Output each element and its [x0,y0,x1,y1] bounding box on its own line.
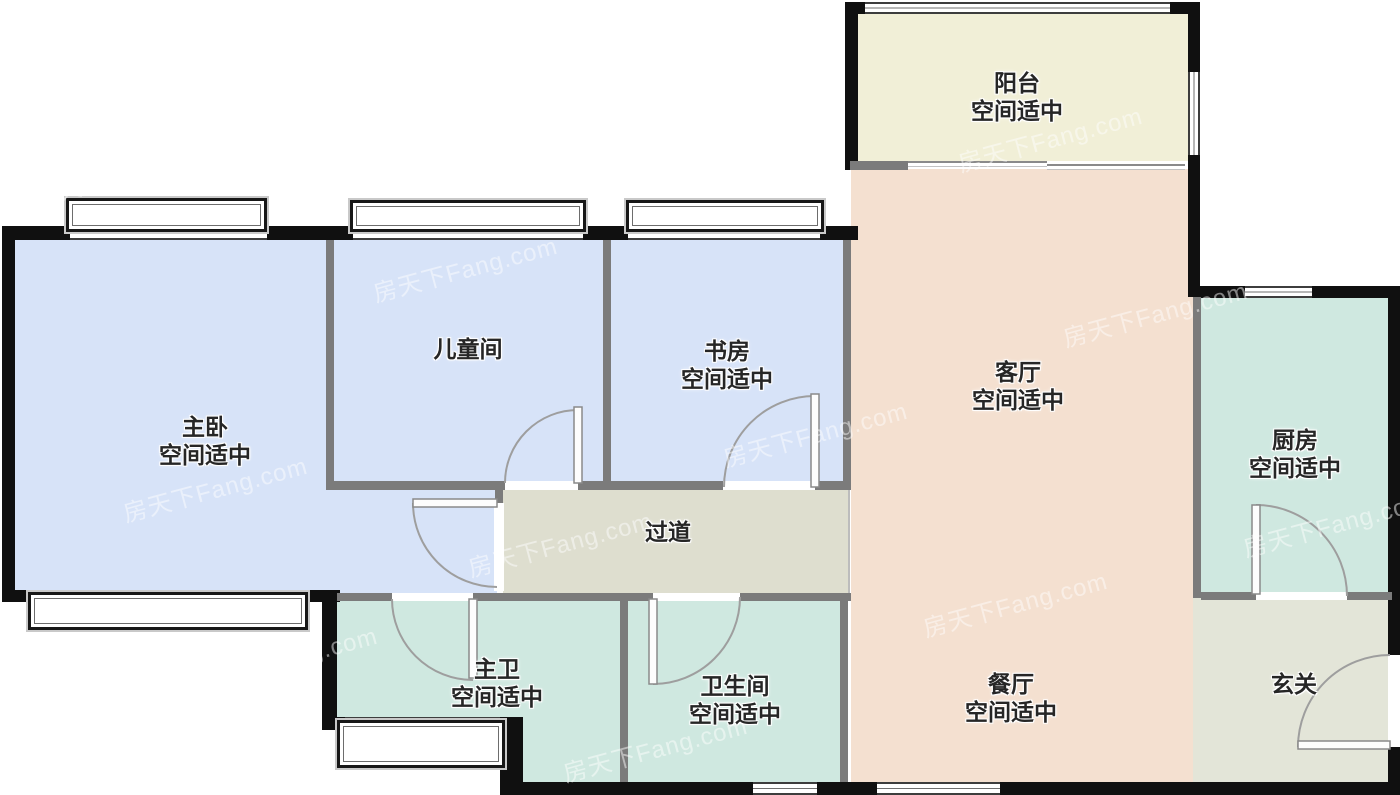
room-status: 空间适中 [689,700,781,728]
room-status: 空间适中 [1249,454,1341,482]
room-name: 儿童间 [434,335,503,363]
wall [505,782,753,795]
balcony-window [865,2,1170,14]
room-status: 空间适中 [971,97,1063,125]
wall [1388,747,1400,795]
wall [1201,592,1256,600]
sliding-door-panel [1047,164,1185,170]
wall [845,2,858,170]
wall [578,481,723,490]
wall [620,601,628,782]
bay-window [350,200,586,232]
wall [337,593,392,601]
room-name: 书房 [681,337,773,365]
wall [850,161,908,170]
room-status: 空间适中 [451,683,543,711]
wall [820,226,858,240]
wall [326,240,334,485]
master-bedroom-extension-area [327,490,497,593]
entry-door-opening [1388,655,1400,747]
bay-window [28,592,308,630]
corridor-label: 过道 [645,518,691,546]
wall [1188,155,1200,297]
bay-window [337,720,505,768]
wall [1000,782,1400,795]
wall [815,481,851,490]
door-opening [723,481,815,490]
window [1188,72,1200,155]
watermark: 房天下Fang.com [629,31,821,114]
master-bath-area-lower [510,700,620,782]
window [877,782,1000,795]
wall [1312,286,1400,298]
foyer-label: 玄关 [1271,670,1317,698]
wall [2,226,15,602]
master-bedroom-label: 主卧 空间适中 [159,413,251,469]
wall [843,240,851,490]
wall [740,593,851,601]
living-room-label: 客厅 空间适中 [972,358,1064,414]
wall [473,593,653,601]
wall [322,596,337,730]
room-name: 客厅 [972,358,1064,386]
wall [817,782,877,795]
room-status: 空间适中 [965,698,1057,726]
door-opening [494,503,504,591]
room-name: 主卫 [451,655,543,683]
sliding-door-panel [908,161,1047,167]
room-name: 餐厅 [965,670,1057,698]
wall [265,226,353,240]
door-opening [505,481,578,490]
wall [1347,592,1392,600]
room-name: 过道 [645,518,691,546]
door-opening [1256,592,1347,600]
door-opening [653,593,740,601]
wall [1193,297,1201,598]
kids-room-label: 儿童间 [434,335,503,363]
wall [495,481,503,505]
master-bath-label: 主卫 空间适中 [451,655,543,711]
balcony-label: 阳台 空间适中 [971,69,1063,125]
study-label: 书房 空间适中 [681,337,773,393]
room-status: 空间适中 [972,386,1064,414]
floor-plan: 阳台 空间适中 主卧 空间适中 儿童间 书房 空间适中 客厅 空间适中 厨房 空… [0,0,1400,795]
room-status: 空间适中 [159,441,251,469]
window [753,782,817,795]
dining-room-label: 餐厅 空间适中 [965,670,1057,726]
wall [326,481,505,490]
wall [583,226,628,240]
door-opening [392,593,473,601]
wall [840,593,848,782]
room-status: 空间适中 [681,365,773,393]
wall [603,240,611,485]
bay-window [626,200,824,232]
room-name: 厨房 [1249,426,1341,454]
room-name: 玄关 [1271,670,1317,698]
room-name: 主卧 [159,413,251,441]
room-boundary-line [848,490,850,593]
kitchen-window [1245,286,1312,298]
room-name: 阳台 [971,69,1063,97]
bay-window [66,198,267,232]
bathroom-label: 卫生间 空间适中 [689,672,781,728]
wall [845,2,865,14]
kitchen-label: 厨房 空间适中 [1249,426,1341,482]
wall [1188,2,1200,72]
room-name: 卫生间 [689,672,781,700]
